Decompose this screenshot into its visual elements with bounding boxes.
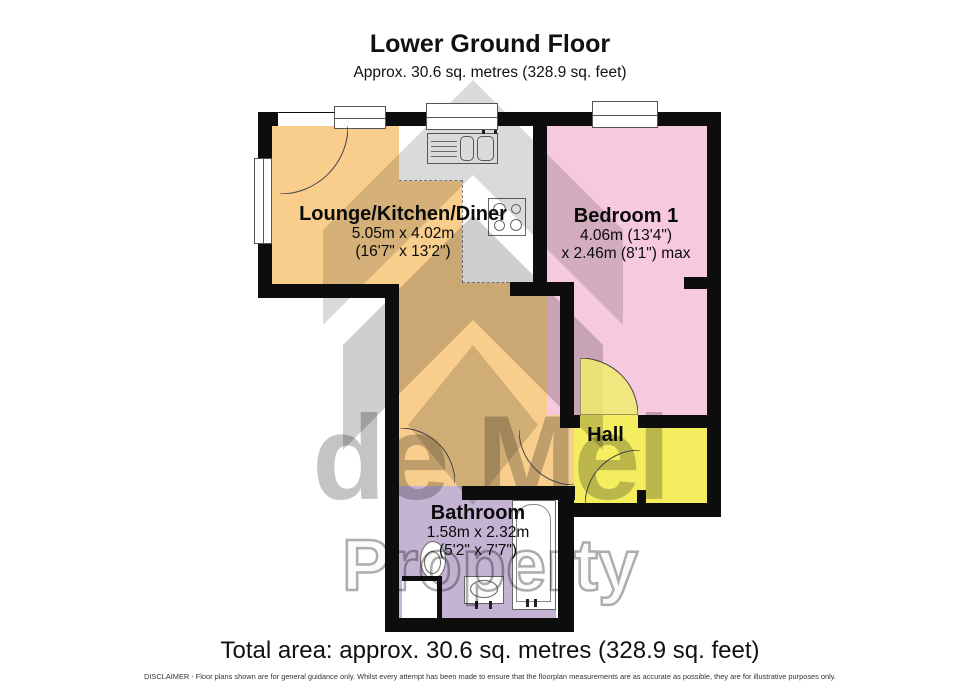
sink-drainer-icon <box>431 137 457 160</box>
wall-segment <box>558 503 721 517</box>
lounge-label: Lounge/Kitchen/Diner 5.05m x 4.02m (16'7… <box>278 203 528 261</box>
bathroom-door-swing-icon <box>400 428 455 483</box>
window-icon <box>254 158 272 244</box>
room-dim-imperial: (16'7" x 13'2") <box>278 243 528 261</box>
bedroom-label: Bedroom 1 4.06m (13'4") x 2.46m (8'1") m… <box>545 205 707 263</box>
wall-segment <box>258 284 398 298</box>
sink-bowl-icon <box>477 136 494 161</box>
room-dim-imperial: (5'2" x 7'7") <box>400 542 556 560</box>
room-dim-metric: 1.58m x 2.32m <box>400 524 556 542</box>
room-dim-metric: 4.06m (13'4") <box>545 227 707 245</box>
disclaimer-text: DISCLAIMER - Floor plans shown are for g… <box>0 672 980 681</box>
total-area-text: Total area: approx. 30.6 sq. metres (328… <box>0 637 980 665</box>
wall-segment <box>385 618 570 632</box>
bedroom-door-swing-icon <box>580 358 638 415</box>
front-door-swing-icon <box>280 126 348 194</box>
sink-bowl-icon <box>460 136 474 161</box>
window-icon <box>426 103 498 130</box>
page-title: Lower Ground Floor <box>0 30 980 59</box>
tap-icon <box>475 601 478 609</box>
room-name: Bathroom <box>400 502 556 524</box>
front-door-opening <box>278 113 336 126</box>
floorplan-page: Lower Ground Floor Approx. 30.6 sq. metr… <box>0 0 980 690</box>
room-name: Lounge/Kitchen/Diner <box>278 203 528 225</box>
wall-segment <box>510 282 574 296</box>
wall-segment <box>385 284 399 632</box>
wall-segment <box>684 277 707 289</box>
tap-icon <box>526 599 529 607</box>
room-dim-imperial: x 2.46m (8'1") max <box>545 245 707 263</box>
bathroom-label: Bathroom 1.58m x 2.32m (5'2" x 7'7") <box>400 502 556 560</box>
room-name: Bedroom 1 <box>545 205 707 227</box>
wall-segment <box>707 112 721 517</box>
tap-icon <box>489 601 492 609</box>
wall-segment <box>560 296 574 415</box>
room-dim-metric: 5.05m x 4.02m <box>278 225 528 243</box>
bathroom-wall-recess <box>402 576 442 618</box>
page-subtitle: Approx. 30.6 sq. metres (328.9 sq. feet) <box>0 64 980 82</box>
tap-icon <box>534 599 537 607</box>
wall-segment <box>462 486 575 500</box>
basin-bowl-icon <box>470 580 498 598</box>
room-name: Hall <box>558 424 653 446</box>
hall-door-swing-icon <box>585 450 640 505</box>
window-icon <box>592 101 658 128</box>
hall-label: Hall <box>558 424 653 446</box>
